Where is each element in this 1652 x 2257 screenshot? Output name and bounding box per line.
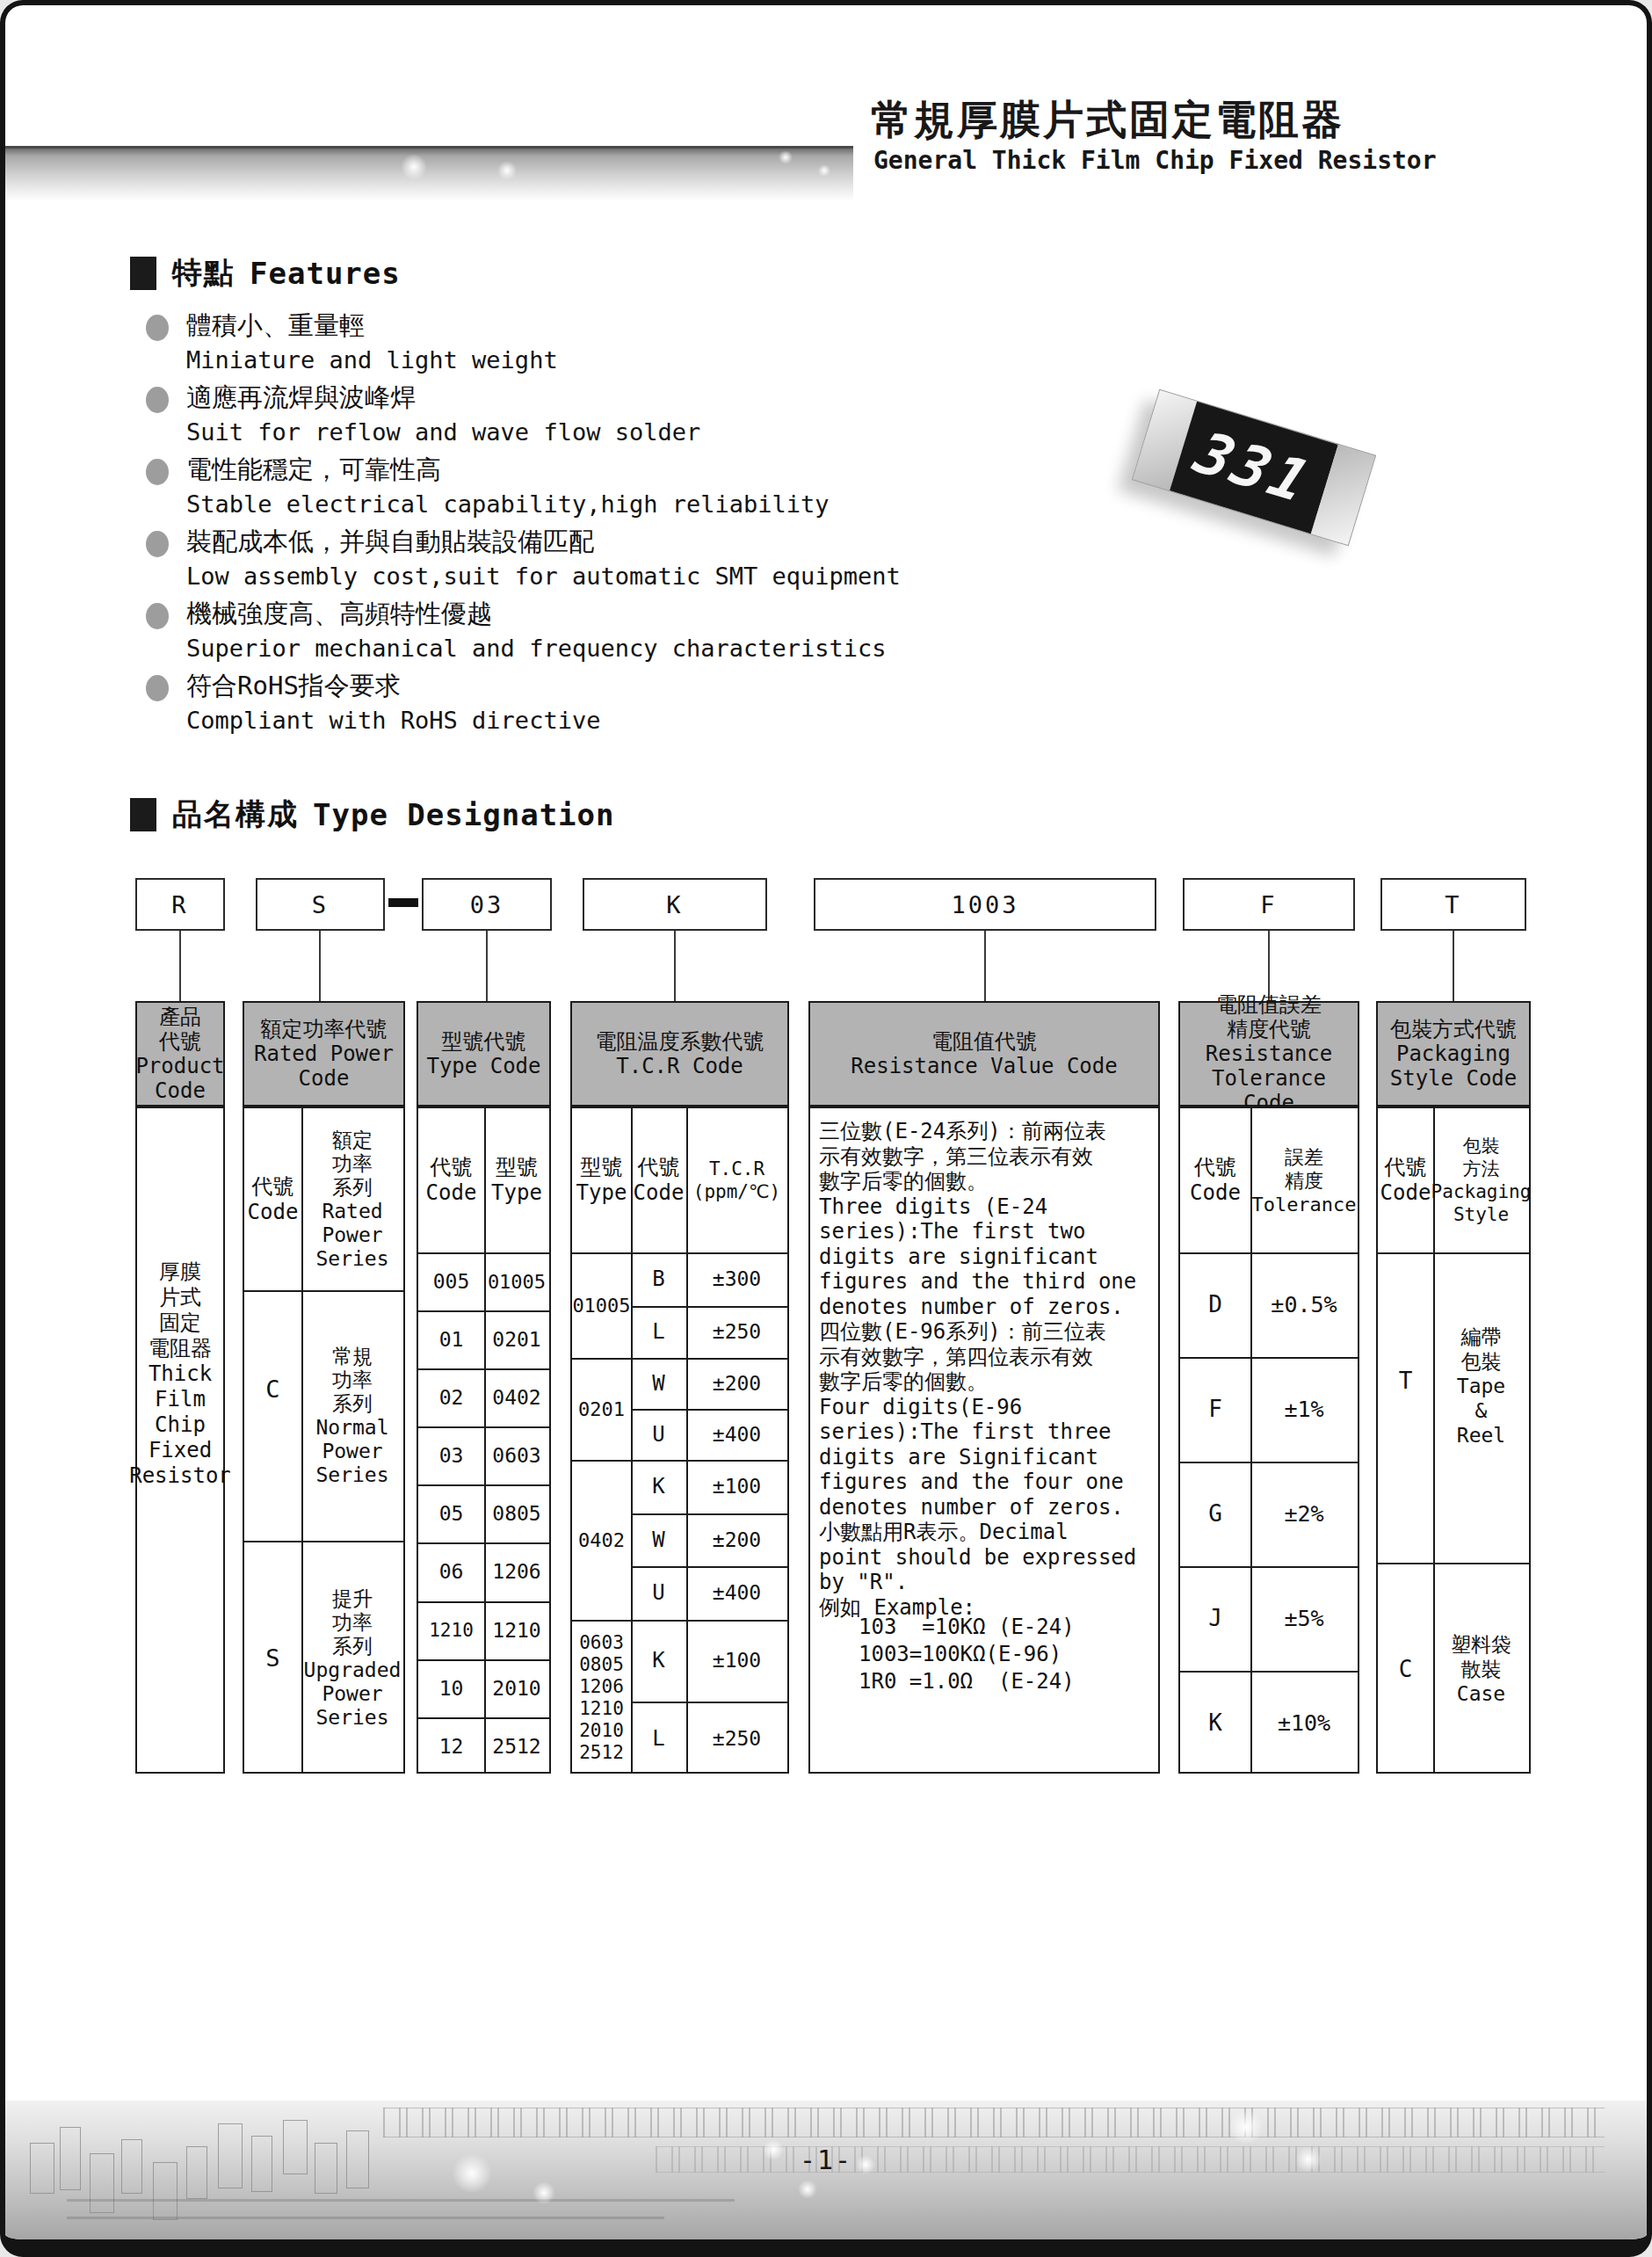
column-header-resistance: 電阻值代號 Resistance Value Code <box>808 1001 1160 1107</box>
tolerance-code: D <box>1180 1252 1250 1357</box>
type-row-type: 0402 <box>484 1368 549 1426</box>
feature-en: Miniature and light weight <box>186 343 558 378</box>
type-row-type: 01005 <box>484 1252 549 1310</box>
resistance-examples: 103 =10KΩ (E-24) 1003=100KΩ(E-96) 1R0 =1… <box>859 1614 1075 1695</box>
type-row-type: 2512 <box>484 1717 549 1775</box>
feature-en: Stable electrical capability,high reliab… <box>186 487 830 522</box>
tolerance-code: F <box>1180 1357 1250 1462</box>
column-header-product: 產品 代號 Product Code <box>135 1001 225 1107</box>
tcr-body: 型號 Type 代號 Code T.C.R (ppm/℃) 01005 B ±3… <box>570 1107 789 1774</box>
tcr-value: ±400 <box>686 1566 787 1620</box>
connector-line <box>179 931 181 1001</box>
footer-band: -1- <box>5 2101 1647 2239</box>
footer-decor-box <box>218 2123 243 2188</box>
feature-en: Compliant with RoHS directive <box>186 703 600 738</box>
code-box-product: R <box>135 878 225 931</box>
tcr-code: U <box>631 1409 686 1460</box>
footer-decor-box <box>346 2130 369 2188</box>
type-row-code: 01 <box>418 1310 484 1368</box>
packaging-style: 編帶 包裝 Tape & Reel <box>1433 1252 1529 1563</box>
code-box-resistance: 1003 <box>814 878 1156 931</box>
bullet-icon <box>146 531 169 557</box>
sparkle <box>763 2139 784 2160</box>
tcr-group-label: 0603 0805 1206 1210 2010 2512 <box>572 1620 631 1775</box>
product-code-body: 厚膜 片式 固定 電阻器 Thick Film Chip Fixed Resis… <box>135 1107 225 1774</box>
tolerance-value: ±10% <box>1250 1671 1358 1775</box>
feature-zh: 適應再流焊與波峰焊 <box>186 380 416 415</box>
footer-decor-box <box>30 2143 54 2194</box>
tolerance-code: G <box>1180 1462 1250 1566</box>
tcr-code: K <box>631 1460 686 1513</box>
type-row-type: 2010 <box>484 1659 549 1717</box>
type-row-code: 1210 <box>418 1601 484 1659</box>
header-gradient-band <box>5 146 853 201</box>
subheader-type: 型號 Type <box>484 1108 549 1252</box>
packaging-body: 代號 Code 包裝 方法 Packaging Style T 編帶 包裝 Ta… <box>1376 1107 1531 1774</box>
tolerance-value: ±0.5% <box>1250 1252 1358 1357</box>
footer-decor-box <box>121 2139 142 2194</box>
type-code-column: 型號代號 Type Code 代號 Code 型號 Type 005 01005… <box>417 1001 551 1774</box>
tcr-value: ±300 <box>686 1252 787 1306</box>
resistance-value-column: 電阻值代號 Resistance Value Code 三位數(E-24系列)：… <box>808 1001 1160 1774</box>
column-header-tolerance: 電阻值誤差 精度代號 Resistance Tolerance Code <box>1178 1001 1359 1107</box>
tcr-column: 電阻温度系數代號 T.C.R Code 型號 Type 代號 Code T.C.… <box>570 1001 789 1774</box>
sparkle <box>779 150 793 164</box>
column-header-tcr: 電阻温度系數代號 T.C.R Code <box>570 1001 789 1107</box>
section-square-icon <box>130 257 156 290</box>
rated-power-code: S <box>244 1541 301 1775</box>
subheader-code: 代號 Code <box>631 1108 686 1252</box>
type-designation-heading-en: Type Designation <box>313 797 615 832</box>
type-row-type: 0201 <box>484 1310 549 1368</box>
type-row-type: 1210 <box>484 1601 549 1659</box>
resistor-chip-photo: 331 <box>1141 420 1366 583</box>
tolerance-value: ±2% <box>1250 1462 1358 1566</box>
connector-line <box>1453 931 1454 1001</box>
tcr-value: ±250 <box>686 1306 787 1358</box>
page-number: -1- <box>800 2145 852 2175</box>
features-heading-zh: 特點 <box>172 253 235 294</box>
tcr-code: W <box>631 1358 686 1409</box>
type-row-code: 005 <box>418 1252 484 1310</box>
connector-line <box>1268 931 1270 1001</box>
subheader-code: 代號 Code <box>1378 1108 1433 1252</box>
footer-decor-box <box>315 2143 337 2194</box>
subheader-code: 代號 Code <box>244 1108 301 1290</box>
code-separator-dash <box>388 898 418 907</box>
code-box-tcr: K <box>583 878 767 931</box>
product-code-column: 產品 代號 Product Code 厚膜 片式 固定 電阻器 Thick Fi… <box>135 1001 225 1774</box>
packaging-code: T <box>1378 1252 1433 1563</box>
tcr-value: ±200 <box>686 1358 787 1409</box>
footer-streak <box>67 2217 664 2219</box>
resistance-note: 三位數(E-24系列)：前兩位表 示有效數字，第三位表示有效 數字后零的個數。 … <box>819 1119 1153 1620</box>
rated-power-code: C <box>244 1290 301 1541</box>
column-header-packaging: 包裝方式代號 Packaging Style Code <box>1376 1001 1531 1107</box>
type-row-type: 0603 <box>484 1426 549 1484</box>
type-row-code: 06 <box>418 1542 484 1601</box>
tolerance-body: 代號 Code 誤差 精度 Tolerance D ±0.5% F ±1% G … <box>1178 1107 1359 1774</box>
connector-line <box>984 931 986 1001</box>
sparkle <box>1295 2146 1322 2173</box>
footer-decor-box <box>60 2127 81 2190</box>
packaging-code: C <box>1378 1563 1433 1775</box>
sparkle <box>452 2153 492 2194</box>
footer-streak <box>67 2199 735 2202</box>
footer-decor-box <box>251 2136 272 2192</box>
resistor-marking: 331 <box>1185 419 1322 516</box>
chip-body: 331 <box>1132 389 1376 547</box>
footer-decor-box <box>90 2153 114 2213</box>
tolerance-value: ±1% <box>1250 1357 1358 1462</box>
section-square-icon <box>130 798 156 831</box>
bullet-icon <box>146 315 169 341</box>
subheader-code: 代號 Code <box>1180 1108 1250 1252</box>
type-code-body: 代號 Code 型號 Type 005 01005 01 0201 02 040… <box>417 1107 551 1774</box>
subheader-series: 額定 功率 系列 Rated Power Series <box>301 1108 403 1290</box>
type-row-type: 1206 <box>484 1542 549 1601</box>
sparkle <box>533 2181 555 2204</box>
type-row-code: 02 <box>418 1368 484 1426</box>
code-box-type: 03 <box>422 878 552 931</box>
footer-decor-box <box>186 2146 207 2199</box>
feature-zh: 裝配成本低，并與自動貼裝設備匹配 <box>186 524 594 559</box>
connector-line <box>674 931 676 1001</box>
bullet-icon <box>146 387 169 413</box>
tcr-group-label: 01005 <box>572 1252 631 1358</box>
resistance-value-body: 三位數(E-24系列)：前兩位表 示有效數字，第三位表示有效 數字后零的個數。 … <box>808 1107 1160 1774</box>
feature-en: Superior mechanical and frequency charac… <box>186 631 887 666</box>
tcr-code: L <box>631 1306 686 1358</box>
subheader-type: 型號 Type <box>572 1108 631 1252</box>
feature-zh: 機械強度高、高頻特性優越 <box>186 596 492 631</box>
column-header-rated-power: 額定功率代號 Rated Power Code <box>243 1001 405 1107</box>
tcr-value: ±100 <box>686 1460 787 1513</box>
footer-decor-box <box>153 2162 178 2220</box>
tolerance-column: 電阻值誤差 精度代號 Resistance Tolerance Code 代號 … <box>1178 1001 1359 1774</box>
footer-square-row <box>656 2146 1605 2173</box>
column-header-type: 型號代號 Type Code <box>417 1001 551 1107</box>
page-title-en: General Thick Film Chip Fixed Resistor <box>873 146 1437 175</box>
bullet-icon <box>146 675 169 701</box>
rated-power-body: 代號 Code 額定 功率 系列 Rated Power Series C 常規… <box>243 1107 405 1774</box>
type-row-code: 12 <box>418 1717 484 1775</box>
subheader-packaging: 包裝 方法 Packaging Style <box>1433 1108 1529 1252</box>
sparkle <box>497 161 517 180</box>
tcr-value: ±400 <box>686 1409 787 1460</box>
bullet-icon <box>146 603 169 629</box>
tcr-value: ±200 <box>686 1513 787 1566</box>
tcr-code: U <box>631 1566 686 1620</box>
type-row-code: 05 <box>418 1484 484 1542</box>
tcr-group-label: 0201 <box>572 1358 631 1460</box>
subheader-code: 代號 Code <box>418 1108 484 1252</box>
sparkle <box>401 154 427 180</box>
type-designation-heading: 品名構成 Type Designation <box>130 795 615 835</box>
tcr-value: ±250 <box>686 1702 787 1775</box>
code-box-rated-power: S <box>256 878 385 931</box>
packaging-column: 包裝方式代號 Packaging Style Code 代號 Code 包裝 方… <box>1376 1001 1531 1774</box>
tcr-group-label: 0402 <box>572 1460 631 1620</box>
type-row-code: 03 <box>418 1426 484 1484</box>
sparkle <box>798 2180 817 2199</box>
sparkle <box>818 164 830 177</box>
packaging-style: 塑料袋 散裝 Case <box>1433 1563 1529 1775</box>
rated-power-series: 提升 功率 系列 Upgraded Power Series <box>301 1541 403 1775</box>
feature-zh: 體積小、重量輕 <box>186 308 365 343</box>
feature-en: Low assembly cost,suit for automatic SMT… <box>186 559 901 594</box>
connector-line <box>486 931 488 1001</box>
tolerance-code: K <box>1180 1671 1250 1775</box>
tcr-value: ±100 <box>686 1620 787 1702</box>
product-cell: 厚膜 片式 固定 電阻器 Thick Film Chip Fixed Resis… <box>137 1108 223 1772</box>
sparkle <box>1228 2109 1264 2145</box>
rated-power-column: 額定功率代號 Rated Power Code 代號 Code 額定 功率 系列… <box>243 1001 405 1774</box>
page-title-zh: 常規厚膜片式固定電阻器 <box>871 93 1344 148</box>
type-row-code: 10 <box>418 1659 484 1717</box>
code-box-tolerance: F <box>1183 878 1355 931</box>
feature-zh: 符合RoHS指令要求 <box>186 668 401 703</box>
feature-zh: 電性能穩定，可靠性高 <box>186 452 441 487</box>
tcr-code: B <box>631 1252 686 1306</box>
tcr-code: W <box>631 1513 686 1566</box>
sparkle <box>856 2155 875 2174</box>
chip-face: 331 <box>1170 402 1338 533</box>
features-heading-en: Features <box>250 256 401 291</box>
feature-en: Suit for reflow and wave flow solder <box>186 415 700 450</box>
type-designation-table: 產品 代號 Product Code 厚膜 片式 固定 電阻器 Thick Fi… <box>135 1001 1531 1774</box>
rated-power-series: 常規 功率 系列 Normal Power Series <box>301 1290 403 1541</box>
subheader-tolerance: 誤差 精度 Tolerance <box>1250 1108 1358 1252</box>
subheader-tcr-unit: T.C.R (ppm/℃) <box>686 1108 787 1252</box>
code-box-packaging: T <box>1380 878 1526 931</box>
tcr-code: L <box>631 1702 686 1775</box>
datasheet-page: 常規厚膜片式固定電阻器 General Thick Film Chip Fixe… <box>0 0 1652 2257</box>
tcr-code: K <box>631 1620 686 1702</box>
tolerance-value: ±5% <box>1250 1566 1358 1671</box>
footer-decor-box <box>283 2120 308 2174</box>
type-row-type: 0805 <box>484 1484 549 1542</box>
bullet-icon <box>146 459 169 485</box>
type-designation-heading-zh: 品名構成 <box>172 795 299 835</box>
features-heading: 特點 Features <box>130 253 401 294</box>
tolerance-code: J <box>1180 1566 1250 1671</box>
footer-square-row <box>383 2108 1605 2137</box>
connector-line <box>319 931 321 1001</box>
